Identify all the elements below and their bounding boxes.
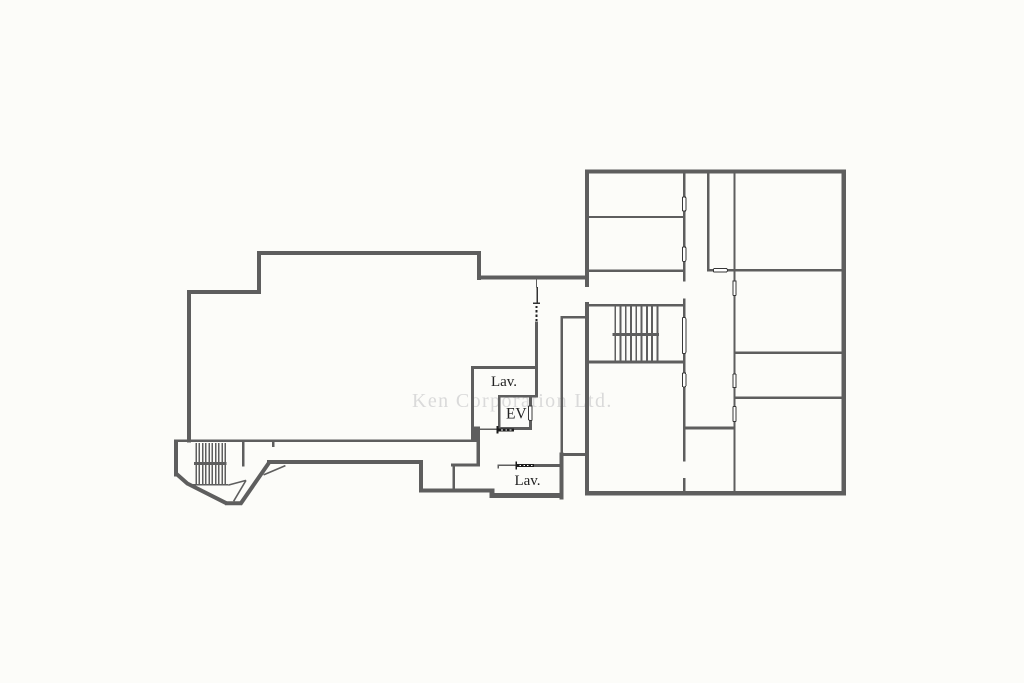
svg-text:EV: EV <box>506 406 527 423</box>
svg-text:Lav.: Lav. <box>491 374 517 390</box>
svg-text:Lav.: Lav. <box>514 473 540 489</box>
